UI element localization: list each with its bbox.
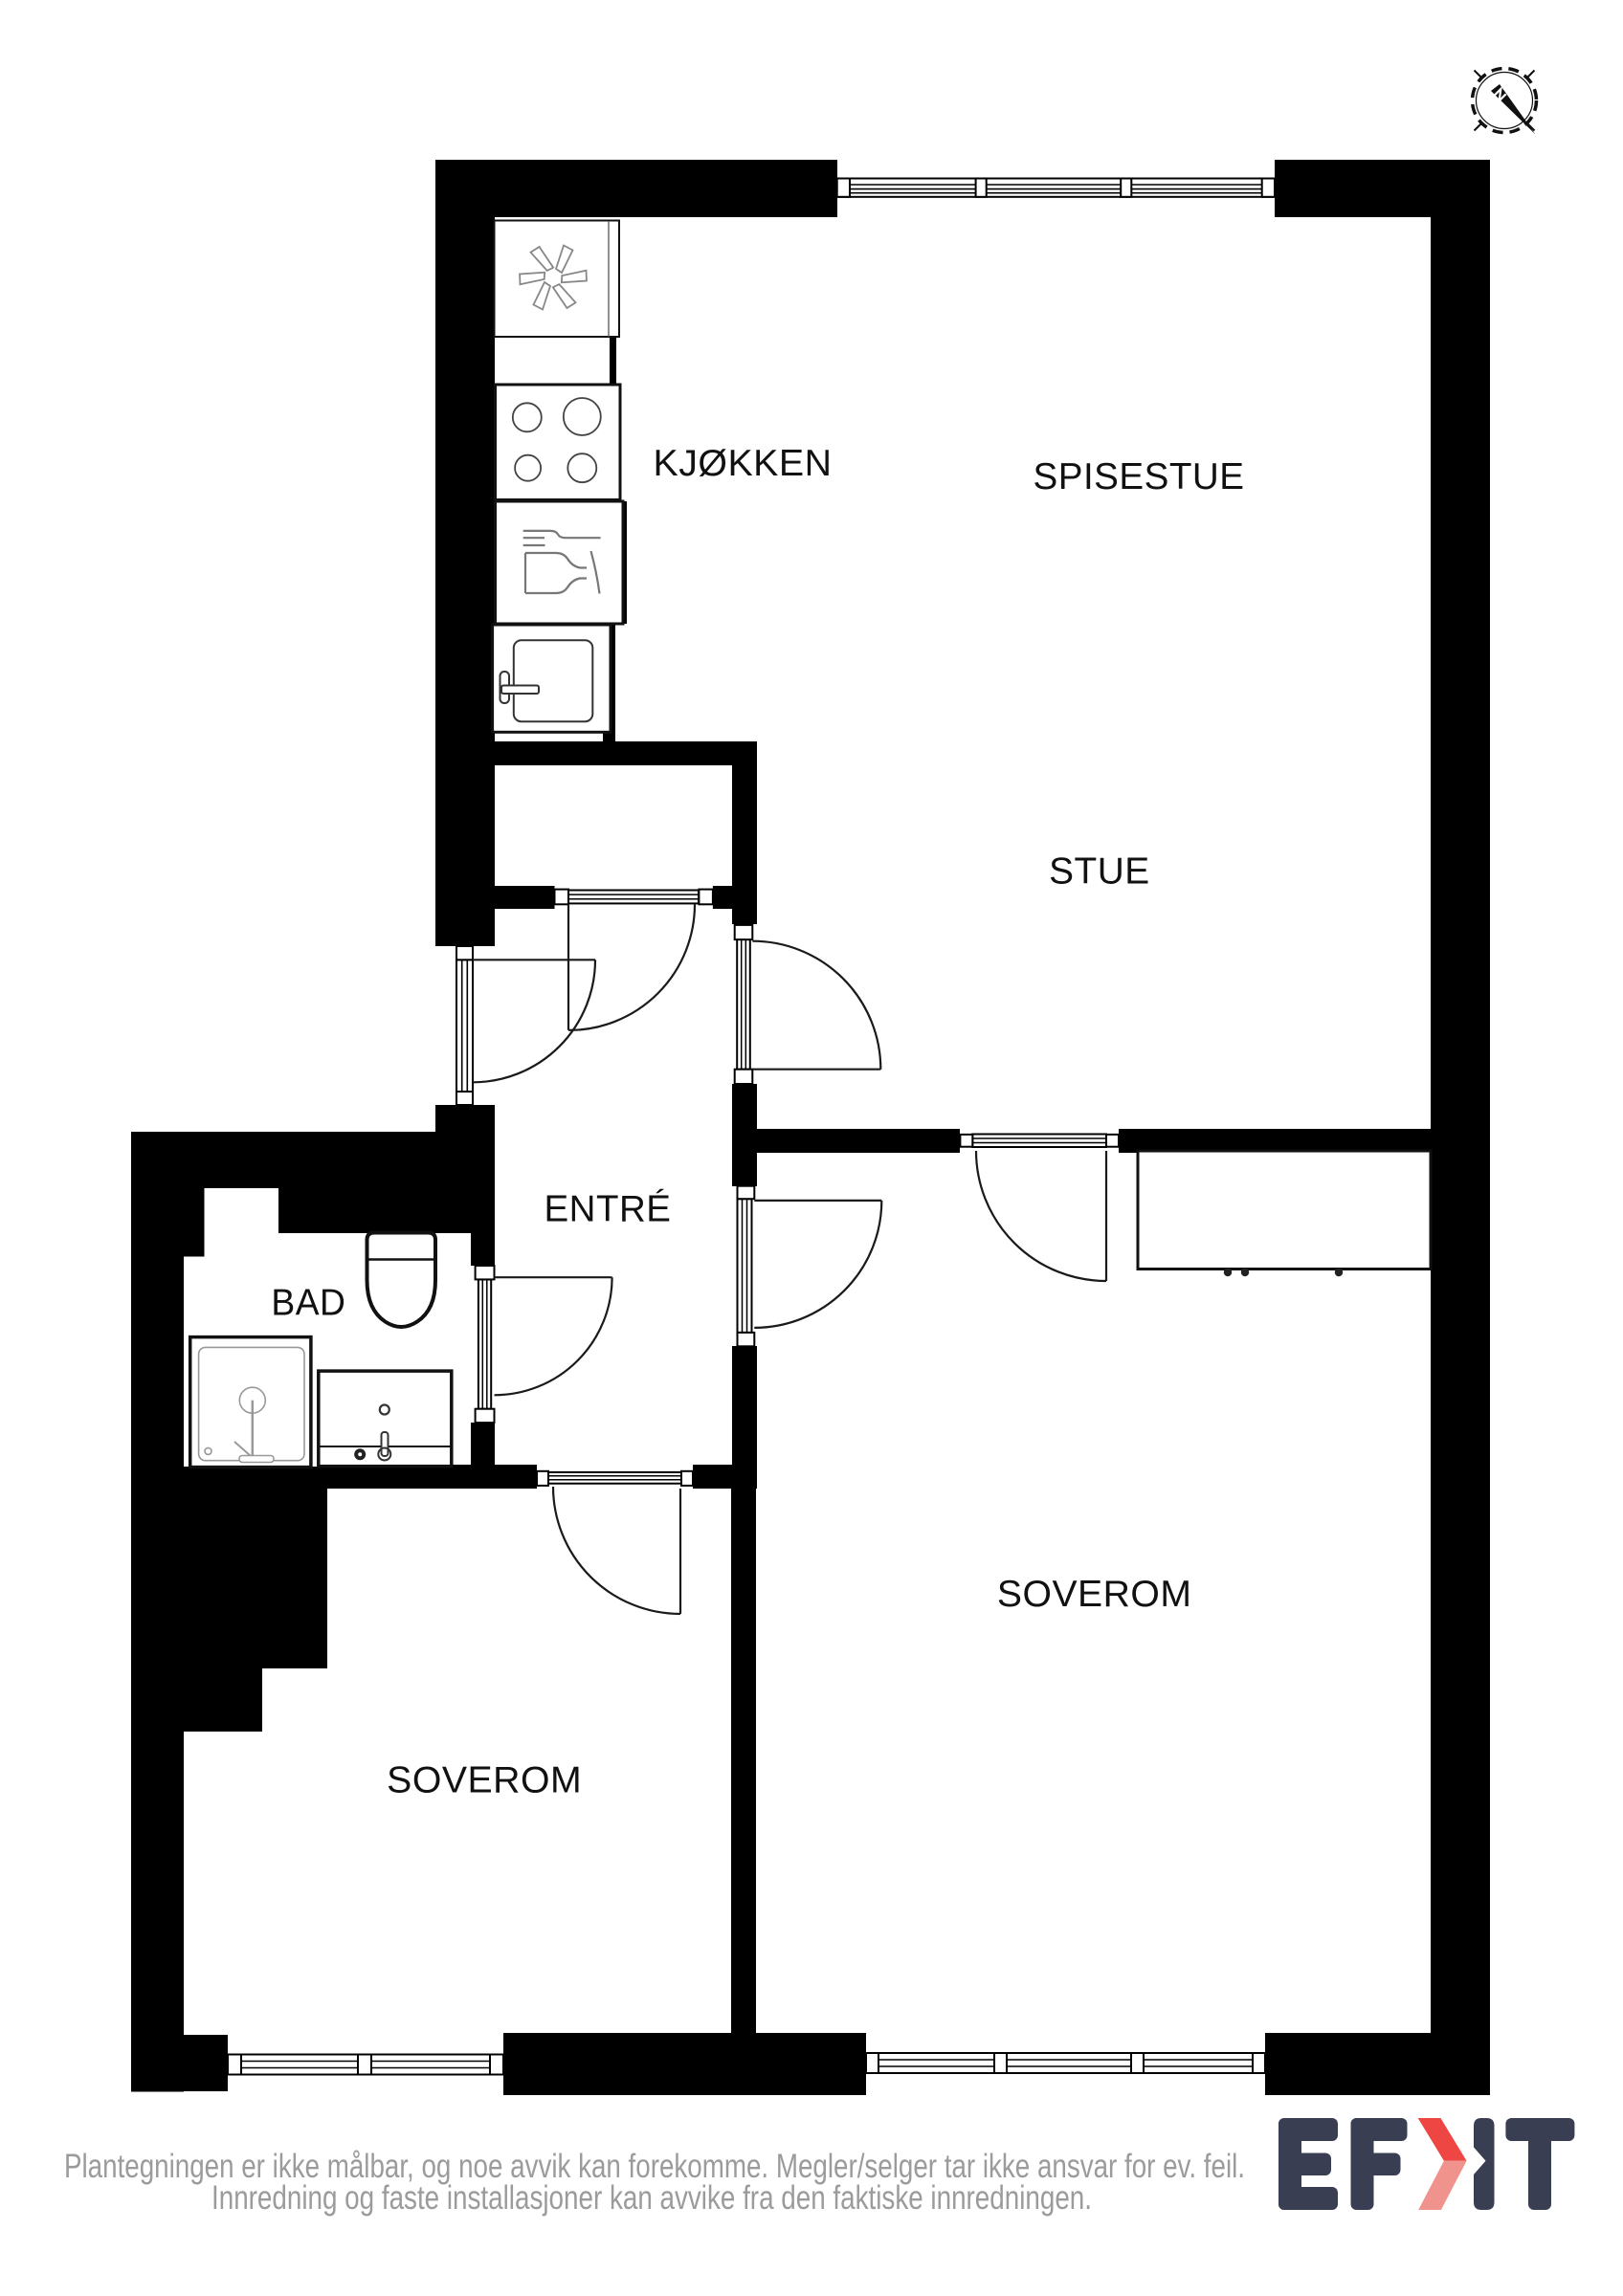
svg-text:STUE: STUE	[1049, 851, 1150, 893]
svg-text:SOVEROM: SOVEROM	[997, 1574, 1192, 1615]
svg-text:SPISESTUE: SPISESTUE	[1034, 456, 1245, 497]
svg-text:KJØKKEN: KJØKKEN	[654, 443, 833, 484]
svg-text:ENTRÉ: ENTRÉ	[545, 1188, 672, 1229]
svg-text:SOVEROM: SOVEROM	[387, 1760, 582, 1801]
svg-text:Innredning og faste installasj: Innredning og faste installasjoner kan a…	[211, 2179, 1092, 2217]
svg-text:BAD: BAD	[271, 1282, 345, 1323]
